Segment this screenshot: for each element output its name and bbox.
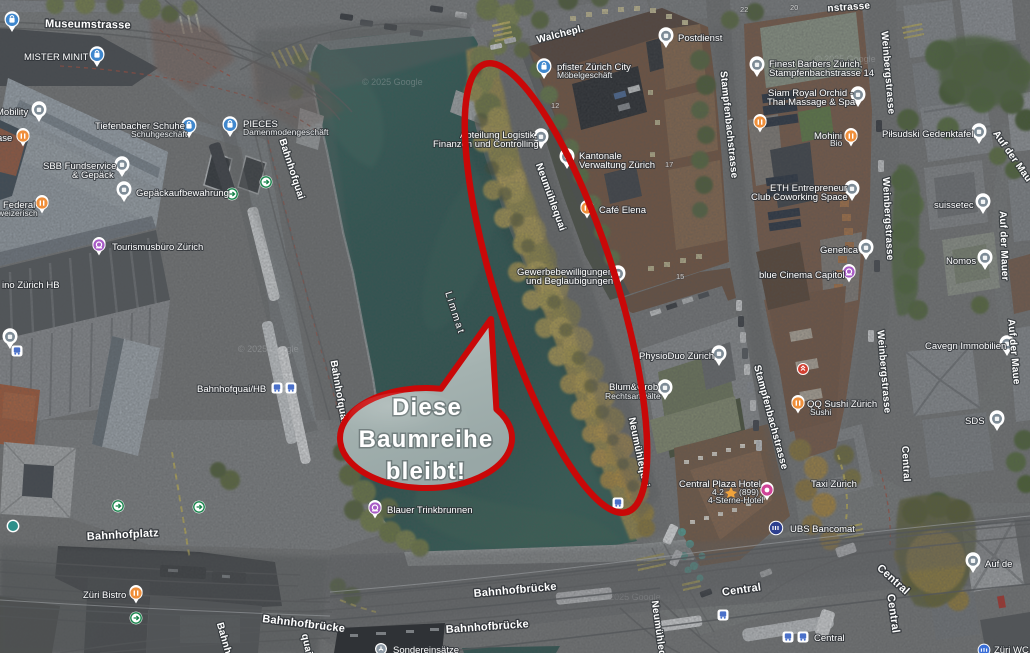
svg-text:SDS: SDS (965, 416, 985, 427)
svg-text:ase: ase (0, 133, 12, 144)
svg-text:22: 22 (740, 5, 748, 14)
svg-text:Züri WC: Züri WC (994, 645, 1029, 653)
svg-text:Genetica: Genetica (820, 245, 859, 256)
svg-text:blue Cinema Capitol: blue Cinema Capitol (759, 270, 845, 281)
svg-text:12: 12 (551, 101, 559, 110)
svg-text:UBS Bancomat: UBS Bancomat (790, 524, 855, 535)
svg-text:Diese: Diese (392, 394, 462, 421)
svg-text:Piłsudski Gedenktafel: Piłsudski Gedenktafel (882, 129, 973, 140)
svg-text:17: 17 (665, 160, 673, 169)
svg-text:Baumreihe: Baumreihe (359, 426, 494, 453)
svg-text:Damenmodengeschäft: Damenmodengeschäft (243, 127, 329, 137)
svg-text:PhysioDuo Zürich: PhysioDuo Zürich (639, 351, 714, 362)
svg-text:Rechtsanwälte: Rechtsanwälte (605, 391, 661, 401)
svg-text:ino Zürich HB: ino Zürich HB (2, 280, 60, 291)
svg-text:Taxi Zürich: Taxi Zürich (811, 479, 857, 490)
svg-text:& Gepäck: & Gepäck (72, 170, 114, 181)
svg-text:Blauer Trinkbrunnen: Blauer Trinkbrunnen (387, 505, 473, 516)
svg-text:15: 15 (676, 272, 684, 281)
svg-text:und Beglaubigungen: und Beglaubigungen (526, 276, 613, 287)
svg-text:suissetec: suissetec (934, 200, 974, 211)
svg-text:Central: Central (814, 633, 845, 644)
svg-text:Finanzen und Controlling: Finanzen und Controlling (433, 139, 539, 150)
svg-text:Club Coworking Space: Club Coworking Space (751, 192, 848, 203)
svg-text:Museumstrasse: Museumstrasse (45, 18, 131, 31)
svg-text:4-Sterne-Hotel: 4-Sterne-Hotel (708, 495, 763, 505)
svg-text:Schuhgeschäft: Schuhgeschäft (131, 129, 188, 139)
svg-text:Postdienst: Postdienst (678, 33, 723, 44)
svg-text:20: 20 (790, 3, 798, 12)
svg-text:Sushi: Sushi (810, 407, 831, 417)
svg-text:Café Elena: Café Elena (599, 205, 647, 216)
svg-text:Cavegn Immobilien: Cavegn Immobilien (925, 341, 1006, 352)
svg-text:Gepäckaufbewahrung: Gepäckaufbewahrung (136, 188, 229, 199)
svg-text:Möbelgeschäft: Möbelgeschäft (557, 70, 613, 80)
svg-text:Bahnhofquai/HB: Bahnhofquai/HB (197, 384, 266, 395)
svg-text:Thai Massage & Spa: Thai Massage & Spa (767, 97, 856, 108)
svg-text:Tourismusbüro Zürich: Tourismusbüro Zürich (112, 242, 203, 253)
svg-text:Central: Central (899, 446, 912, 482)
svg-text:Stampfenbachstrasse 14: Stampfenbachstrasse 14 (769, 68, 874, 79)
svg-text:bleibt!: bleibt! (386, 458, 466, 485)
svg-text:MISTER MINIT: MISTER MINIT (24, 52, 89, 63)
svg-text:Verwaltung Zürich: Verwaltung Zürich (579, 160, 655, 171)
svg-text:weizerisch: weizerisch (0, 208, 38, 218)
svg-text:Bio: Bio (830, 138, 843, 148)
svg-text:Nomos: Nomos (946, 256, 976, 267)
svg-text:Sondereinsätze: Sondereinsätze (393, 645, 459, 653)
svg-text:Züri Bistro: Züri Bistro (83, 590, 126, 601)
svg-text:Mobility: Mobility (0, 107, 28, 118)
svg-text:Auf de: Auf de (985, 559, 1012, 570)
